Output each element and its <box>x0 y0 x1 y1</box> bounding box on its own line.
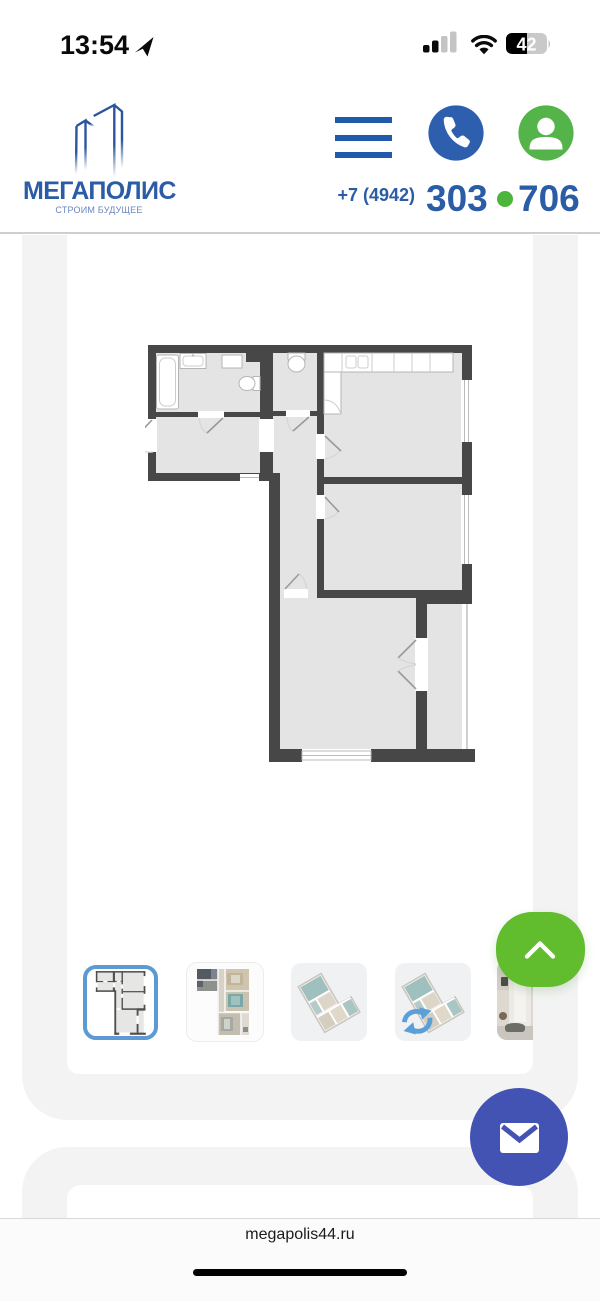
svg-text:42: 42 <box>516 35 536 55</box>
